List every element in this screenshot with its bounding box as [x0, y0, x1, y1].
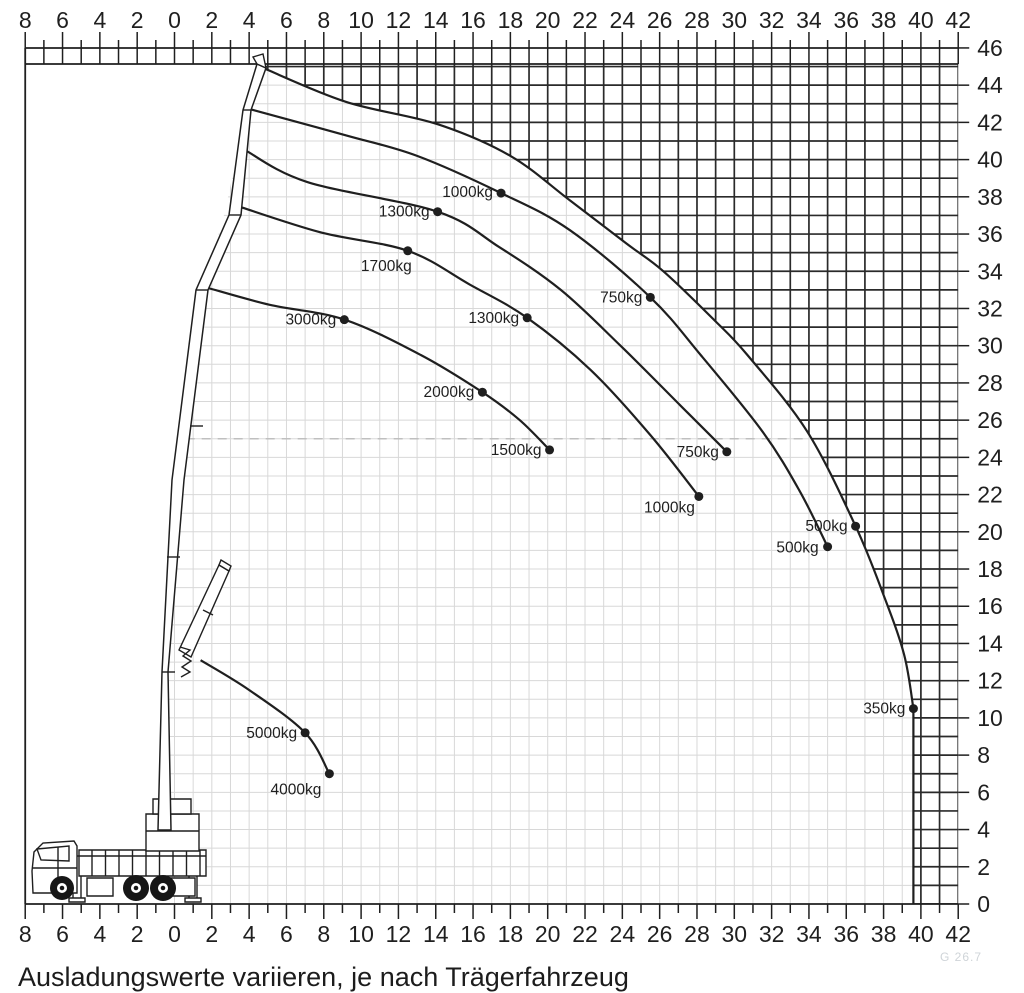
- svg-text:24: 24: [977, 444, 1003, 470]
- svg-text:46: 46: [977, 35, 1003, 61]
- svg-text:30: 30: [722, 7, 748, 33]
- svg-text:24: 24: [610, 7, 636, 33]
- svg-text:40: 40: [908, 921, 934, 947]
- svg-text:2: 2: [205, 921, 218, 947]
- load-point: [909, 704, 918, 713]
- svg-text:42: 42: [945, 921, 971, 947]
- load-label: 4000kg: [271, 782, 322, 799]
- svg-text:14: 14: [977, 630, 1003, 656]
- svg-text:38: 38: [977, 184, 1003, 210]
- svg-text:8: 8: [19, 7, 32, 33]
- svg-text:16: 16: [977, 593, 1003, 619]
- load-label: 750kg: [677, 444, 719, 461]
- load-label: 1500kg: [491, 442, 542, 459]
- svg-text:10: 10: [348, 7, 374, 33]
- load-point: [497, 189, 506, 198]
- svg-text:34: 34: [977, 258, 1003, 284]
- svg-text:42: 42: [977, 109, 1003, 135]
- svg-text:2: 2: [977, 854, 990, 880]
- load-point: [325, 769, 334, 778]
- svg-text:28: 28: [977, 370, 1003, 396]
- svg-text:4: 4: [93, 921, 106, 947]
- load-point: [301, 728, 310, 737]
- load-point: [523, 313, 532, 322]
- svg-text:24: 24: [610, 921, 636, 947]
- svg-text:18: 18: [498, 7, 524, 33]
- svg-text:16: 16: [460, 921, 486, 947]
- svg-text:26: 26: [977, 407, 1003, 433]
- svg-text:8: 8: [977, 742, 990, 768]
- svg-text:32: 32: [759, 7, 785, 33]
- svg-text:28: 28: [684, 7, 710, 33]
- load-label: 1000kg: [644, 499, 695, 516]
- svg-text:38: 38: [871, 7, 897, 33]
- svg-text:26: 26: [647, 921, 673, 947]
- svg-text:4: 4: [243, 921, 256, 947]
- svg-text:0: 0: [977, 891, 990, 917]
- load-label: 1300kg: [468, 310, 519, 327]
- svg-text:30: 30: [722, 921, 748, 947]
- svg-text:20: 20: [977, 519, 1003, 545]
- load-point: [340, 315, 349, 324]
- load-label: 3000kg: [285, 312, 336, 329]
- svg-text:40: 40: [977, 147, 1003, 173]
- svg-text:2: 2: [205, 7, 218, 33]
- svg-text:12: 12: [977, 668, 1003, 694]
- svg-text:8: 8: [19, 921, 32, 947]
- svg-text:10: 10: [348, 921, 374, 947]
- svg-text:32: 32: [977, 295, 1003, 321]
- load-label: 1000kg: [442, 184, 493, 201]
- svg-text:26: 26: [647, 7, 673, 33]
- svg-text:38: 38: [871, 921, 897, 947]
- svg-text:8: 8: [317, 921, 330, 947]
- svg-text:4: 4: [243, 7, 256, 33]
- load-label: 500kg: [805, 518, 847, 535]
- svg-text:4: 4: [977, 817, 990, 843]
- svg-text:10: 10: [977, 705, 1003, 731]
- svg-text:6: 6: [977, 779, 990, 805]
- svg-text:2: 2: [131, 7, 144, 33]
- load-point: [545, 445, 554, 454]
- svg-text:22: 22: [572, 7, 598, 33]
- svg-text:12: 12: [386, 921, 412, 947]
- caption-text: Ausladungswerte variieren, je nach Träge…: [18, 962, 629, 993]
- svg-text:36: 36: [977, 221, 1003, 247]
- load-label: 1700kg: [361, 258, 412, 275]
- svg-text:44: 44: [977, 72, 1003, 98]
- load-point: [403, 246, 412, 255]
- svg-text:20: 20: [535, 7, 561, 33]
- svg-text:34: 34: [796, 921, 822, 947]
- svg-text:20: 20: [535, 921, 561, 947]
- load-label: 1300kg: [379, 204, 430, 221]
- svg-text:6: 6: [56, 921, 69, 947]
- svg-text:22: 22: [572, 921, 598, 947]
- svg-text:6: 6: [56, 7, 69, 33]
- load-label: 750kg: [600, 289, 642, 306]
- svg-text:2: 2: [131, 921, 144, 947]
- load-label: 5000kg: [246, 725, 297, 742]
- svg-text:22: 22: [977, 482, 1003, 508]
- load-point: [478, 388, 487, 397]
- svg-text:14: 14: [423, 7, 449, 33]
- load-label: 2000kg: [424, 384, 475, 401]
- load-point: [722, 447, 731, 456]
- svg-text:12: 12: [386, 7, 412, 33]
- load-point: [851, 522, 860, 531]
- svg-text:36: 36: [833, 7, 859, 33]
- load-point: [823, 542, 832, 551]
- svg-text:42: 42: [945, 7, 971, 33]
- svg-text:6: 6: [280, 921, 293, 947]
- corner-watermark: G 26.7: [940, 950, 982, 964]
- svg-text:36: 36: [833, 921, 859, 947]
- crane-load-chart: 8866442200224466881010121214141616181820…: [0, 0, 1024, 983]
- svg-text:28: 28: [684, 921, 710, 947]
- svg-text:18: 18: [498, 921, 524, 947]
- svg-text:34: 34: [796, 7, 822, 33]
- svg-text:30: 30: [977, 333, 1003, 359]
- svg-text:0: 0: [168, 7, 181, 33]
- load-label: 350kg: [863, 701, 905, 718]
- svg-text:40: 40: [908, 7, 934, 33]
- svg-text:32: 32: [759, 921, 785, 947]
- load-point: [646, 293, 655, 302]
- svg-text:14: 14: [423, 921, 449, 947]
- load-label: 500kg: [776, 540, 818, 557]
- svg-text:16: 16: [460, 7, 486, 33]
- svg-text:6: 6: [280, 7, 293, 33]
- svg-text:0: 0: [168, 921, 181, 947]
- svg-text:18: 18: [977, 556, 1003, 582]
- svg-text:4: 4: [93, 7, 106, 33]
- load-point: [433, 207, 442, 216]
- load-point: [694, 492, 703, 501]
- svg-text:8: 8: [317, 7, 330, 33]
